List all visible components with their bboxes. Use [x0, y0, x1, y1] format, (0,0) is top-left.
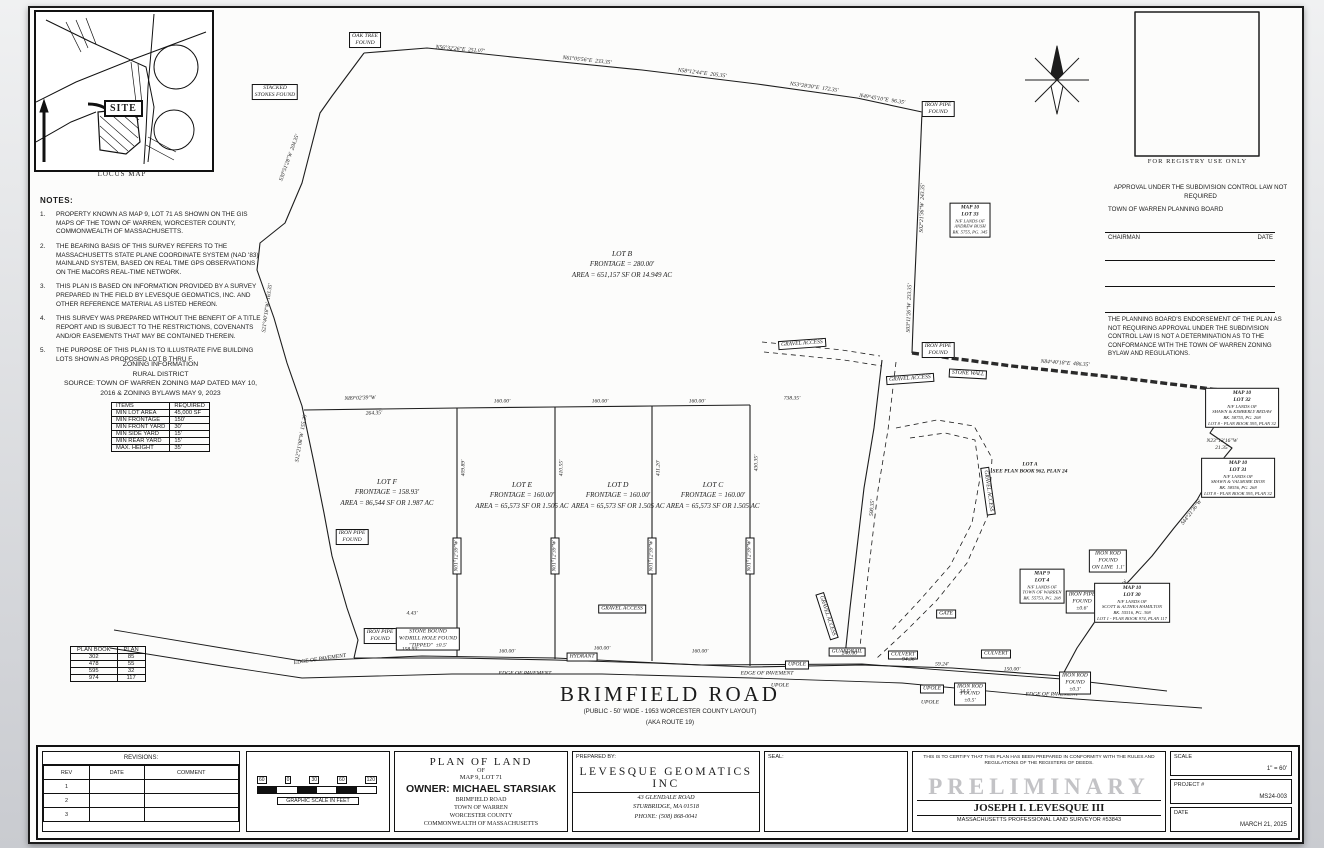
surveyor-name: JOSEPH I. LEVESQUE III	[917, 800, 1161, 814]
plan-sheet: SITE LOCUS MAP NOTES: 1.PROPERTY KNOWN A…	[28, 6, 1304, 844]
lot-label: LOT FFRONTAGE = 158.93'AREA = 86,544 SF …	[340, 476, 433, 508]
survey-annotation: 738.35'	[784, 396, 801, 403]
survey-annotation: N01°12'39"W	[453, 538, 462, 575]
survey-annotation: 411.20'	[656, 460, 663, 476]
project-value: MS24-003	[1259, 794, 1287, 800]
survey-annotation: STACKED STONES FOUND	[252, 84, 298, 100]
signature-labels: CHAIRMAN DATE	[1108, 235, 1273, 241]
locus-site-label: SITE	[104, 100, 143, 117]
seal-label: SEAL:	[768, 754, 784, 760]
plan-town: TOWN OF WARREN	[395, 804, 567, 812]
survey-annotation: N01°12'39"W	[746, 538, 755, 575]
date-label: DATE	[1174, 810, 1188, 816]
plan-book-block: PLAN BOOKPLAN302854785559532974117	[70, 646, 146, 682]
revisions-table: REVDATECOMMENT123	[43, 765, 239, 822]
date-label: DATE	[1257, 235, 1273, 241]
plan-map-lot: MAP 9, LOT 71	[395, 774, 567, 781]
survey-annotation: UPOLE	[771, 683, 789, 690]
road-sub2: (AKA ROUTE 19)	[500, 719, 840, 726]
lot-label: LOT EFRONTAGE = 160.00'AREA = 65,573 SF …	[475, 479, 568, 511]
plan-road: BRIMFIELD ROAD	[395, 796, 567, 804]
survey-annotation: GRAVEL ACCESS	[598, 605, 646, 614]
signature-line	[1105, 232, 1275, 233]
registry-rect	[1135, 12, 1259, 156]
survey-annotation: 430.35'	[754, 455, 761, 472]
locus-map: SITE	[34, 10, 214, 172]
zoning-source1: SOURCE: TOWN OF WARREN ZONING MAP DATED …	[48, 379, 273, 389]
boundary-frontage	[354, 658, 1062, 676]
gravel-access-loop	[877, 420, 992, 658]
survey-annotation: N01°12'39"W	[551, 538, 560, 575]
road-sub1: (PUBLIC - 50' WIDE - 1953 WORCESTER COUN…	[500, 708, 840, 715]
survey-annotation: 264.35'	[366, 410, 383, 418]
graphic-scale-block: 6003060120 GRAPHIC SCALE IN FEET	[246, 751, 390, 832]
prepared-by-label: PREPARED BY:	[576, 754, 616, 760]
abutter-parcel-label: MAP 9LOT 4N/F LANDS OFTOWN OF WARRENBK. …	[1020, 569, 1065, 604]
gravel-access-upper-2	[764, 352, 882, 366]
survey-annotation: UPOLE	[920, 685, 944, 694]
surveyor-title: MASSACHUSETTS PROFESSIONAL LAND SURVEYOR…	[917, 815, 1161, 823]
boundary-ne	[1062, 390, 1232, 676]
survey-annotation: GATE	[936, 610, 956, 619]
survey-annotation: IRON ROD FOUND ON LINE 1.1'	[1089, 550, 1127, 573]
gravel-access-west	[859, 362, 896, 656]
company-name: LEVESQUE GEOMATICS INC	[573, 766, 759, 793]
survey-annotation: 24.5'	[960, 689, 971, 696]
survey-annotation: IRON PIPE FOUND	[336, 529, 369, 545]
abutter-parcel-label: MAP 10LOT 33N/F LANDS OFANDREW BUSHBK. 5…	[950, 203, 991, 238]
project-label: PROJECT #	[1174, 782, 1204, 788]
approval-text: APPROVAL UNDER THE SUBDIVISION CONTROL L…	[1108, 184, 1293, 202]
prepared-by-block: PREPARED BY: LEVESQUE GEOMATICS INC 43 G…	[572, 751, 760, 832]
plan-of-land-block: PLAN OF LAND OF MAP 9, LOT 71 OWNER: MIC…	[394, 751, 568, 832]
date-value: MARCH 21, 2025	[1240, 822, 1287, 828]
project-row: PROJECT # MS24-003	[1170, 779, 1292, 804]
survey-annotation: 409.89'	[461, 460, 468, 477]
zoning-title1: ZONING INFORMATION	[48, 360, 273, 370]
survey-annotation: 160.00'	[494, 399, 511, 406]
note-item: 2.THE BEARING BASIS OF THIS SURVEY REFER…	[40, 243, 265, 278]
zoning-title2: RURAL DISTRICT	[48, 370, 273, 380]
survey-annotation: 160.00'	[499, 649, 516, 656]
planning-board-text: TOWN OF WARREN PLANNING BOARD	[1108, 206, 1293, 213]
abutter-parcel-label: MAP 10LOT 30N/F LANDS OFSCOTT & ALTHEA H…	[1094, 583, 1170, 623]
survey-annotation: IRON ROD FOUND ±0.3'	[1059, 672, 1091, 695]
survey-annotation: 240.00'	[842, 651, 859, 658]
registry-caption: FOR REGISTRY USE ONLY	[1110, 158, 1285, 165]
survey-annotation: 160.00'	[592, 399, 609, 406]
boundary-top	[364, 48, 922, 112]
revisions-title: REVISIONS:	[43, 752, 239, 765]
survey-annotation: 150.00'	[1004, 667, 1021, 674]
survey-annotation: 160.00'	[692, 649, 709, 656]
survey-annotation: 158.93'	[402, 647, 419, 654]
note-item: 1.PROPERTY KNOWN AS MAP 9, LOT 71 AS SHO…	[40, 211, 265, 237]
plan-book-table: PLAN BOOKPLAN302854785559532974117	[70, 646, 146, 682]
survey-annotation: CULVERT	[981, 650, 1011, 659]
notes-title: NOTES:	[40, 196, 265, 205]
north-arrow-icon	[1025, 46, 1089, 114]
survey-annotation: 59.24'	[935, 662, 949, 669]
scale-value: 1" = 60'	[1267, 766, 1287, 772]
zoning-table: ITEMSREQUIREDMIN LOT AREA45,000 SFMIN FR…	[111, 402, 210, 452]
endorsement-text: THE PLANNING BOARD'S ENDORSEMENT OF THE …	[1108, 316, 1288, 359]
seal-block: SEAL:	[764, 751, 908, 832]
company-addr2: STURBRIDGE, MA 01518	[573, 802, 759, 811]
survey-annotation: STONE WALL	[949, 369, 988, 380]
survey-annotation: EDGE OF PAVEMENT	[741, 671, 794, 678]
lot-label: LOT BFRONTAGE = 280.00'AREA = 651,157 SF…	[572, 248, 672, 280]
scale-caption: GRAPHIC SCALE IN FEET	[277, 797, 359, 805]
survey-annotation: IRON PIPE FOUND	[922, 342, 955, 358]
chairman-label: CHAIRMAN	[1108, 235, 1140, 241]
survey-annotation: N23°13'16"W 21.35'	[1207, 438, 1238, 452]
survey-annotation: IRON PIPE FOUND	[922, 101, 955, 117]
lots-north-line	[304, 405, 750, 410]
signature-line	[1105, 286, 1275, 287]
survey-annotation: 500.35'	[869, 499, 877, 516]
plan-title: PLAN OF LAND	[395, 756, 567, 768]
company-phone: PHONE: (508) 868-0041	[573, 812, 759, 821]
certification-text: THIS IS TO CERTIFY THAT THIS PLAN HAS BE…	[913, 752, 1165, 768]
abutter-parcel-label: LOT ASEE PLAN BOOK 962, PLAN 24	[991, 460, 1070, 476]
survey-annotation: HYDRANT	[567, 653, 598, 662]
survey-annotation: IRON PIPE FOUND	[364, 628, 397, 644]
scale-ticks: 6003060120	[257, 776, 377, 784]
survey-annotation: 410.55'	[559, 460, 566, 477]
notes-list: 1.PROPERTY KNOWN AS MAP 9, LOT 71 AS SHO…	[40, 211, 265, 365]
abutter-parcel-label: MAP 10LOT 32N/F LANDS OFSHAWN & KIMBERLY…	[1205, 388, 1279, 428]
note-item: 4.THIS SURVEY WAS PREPARED WITHOUT THE B…	[40, 315, 265, 341]
survey-annotation: 4.43'	[407, 611, 418, 618]
meta-block: SCALE 1" = 60' PROJECT # MS24-003 DATE M…	[1170, 751, 1292, 830]
survey-annotation: UPOLE	[785, 661, 809, 670]
company-addr1: 43 GLENDALE ROAD	[573, 793, 759, 802]
signature-line	[1105, 312, 1275, 313]
notes-block: NOTES: 1.PROPERTY KNOWN AS MAP 9, LOT 71…	[40, 196, 265, 371]
survey-annotation: 160.00'	[689, 399, 706, 406]
scale-label: SCALE	[1174, 754, 1192, 760]
scale-row: SCALE 1" = 60'	[1170, 751, 1292, 776]
owner-name: OWNER: MICHAEL STARSIAK	[395, 783, 567, 795]
zoning-block: ZONING INFORMATION RURAL DISTRICT SOURCE…	[48, 360, 273, 452]
lot-label: LOT DFRONTAGE = 160.00'AREA = 65,573 SF …	[571, 479, 664, 511]
survey-annotation: EDGE OF PAVEMENT	[499, 671, 552, 678]
certification-block: THIS IS TO CERTIFY THAT THIS PLAN HAS BE…	[912, 751, 1166, 832]
boundary-left	[257, 53, 364, 658]
signature-line	[1105, 260, 1275, 261]
survey-annotation: 160.00'	[594, 646, 611, 653]
zoning-source2: 2016 & ZONING BYLAWS MAY 9, 2023	[48, 389, 273, 399]
note-item: 3.THIS PLAN IS BASED ON INFORMATION PROV…	[40, 283, 265, 309]
survey-annotation: N89°02'39"W	[344, 395, 375, 403]
title-block-strip: REVISIONS: REVDATECOMMENT123 6003060120 …	[36, 745, 1300, 840]
survey-annotation: N01°12'39"W	[648, 538, 657, 575]
survey-annotation: 94.36'	[902, 657, 916, 664]
date-row: DATE MARCH 21, 2025	[1170, 807, 1292, 832]
lot-label: LOT CFRONTAGE = 160.00'AREA = 65,573 SF …	[666, 479, 759, 511]
locus-caption: LOCUS MAP	[34, 170, 210, 178]
preliminary-stamp: PRELIMINARY	[913, 774, 1165, 800]
revisions-block: REVISIONS: REVDATECOMMENT123	[42, 751, 240, 832]
plan-state: COMMONWEALTH OF MASSACHUSETTS	[395, 820, 567, 828]
survey-annotation: OAK TREE FOUND	[349, 32, 381, 48]
abutter-parcel-label: MAP 10LOT 31N/F LANDS OFSHAWN & VALMORE …	[1201, 458, 1275, 498]
plan-county: WORCESTER COUNTY	[395, 812, 567, 820]
survey-annotation: UPOLE	[921, 700, 939, 707]
scale-bar	[257, 786, 377, 794]
